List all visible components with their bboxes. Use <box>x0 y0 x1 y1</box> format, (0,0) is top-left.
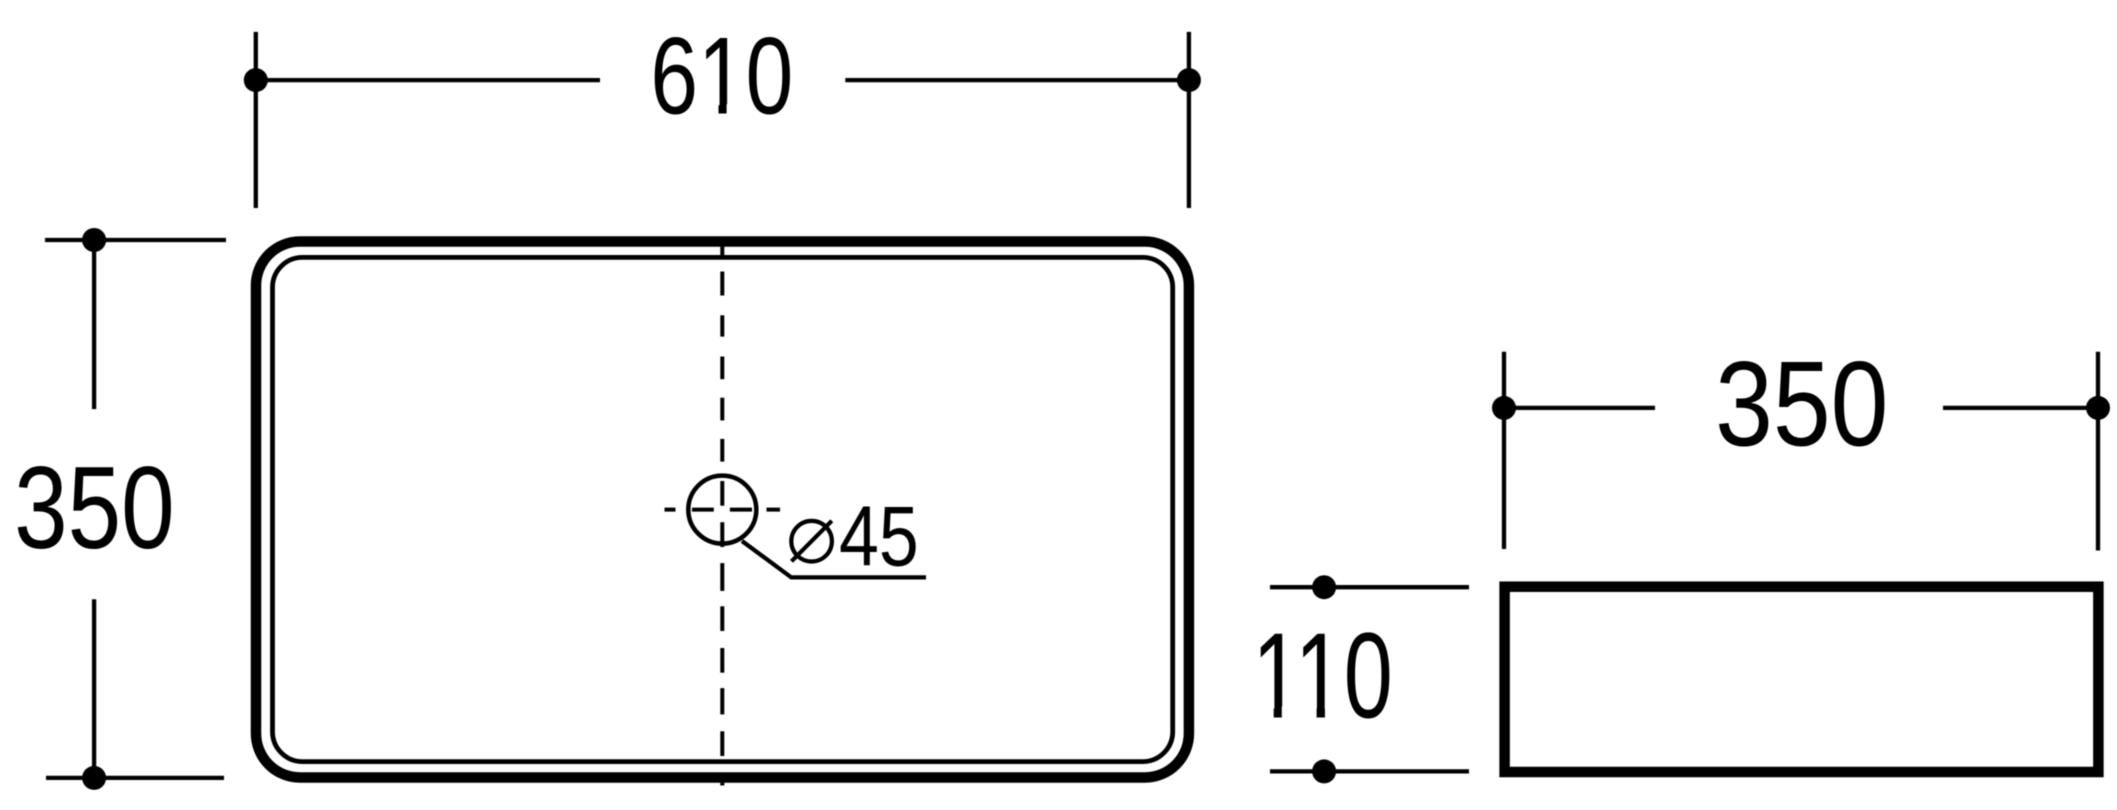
svg-text:45: 45 <box>839 488 919 583</box>
svg-text:610: 610 <box>650 14 793 137</box>
svg-text:350: 350 <box>1715 336 1888 471</box>
svg-text:110: 110 <box>1252 609 1393 744</box>
svg-text:350: 350 <box>14 442 175 573</box>
